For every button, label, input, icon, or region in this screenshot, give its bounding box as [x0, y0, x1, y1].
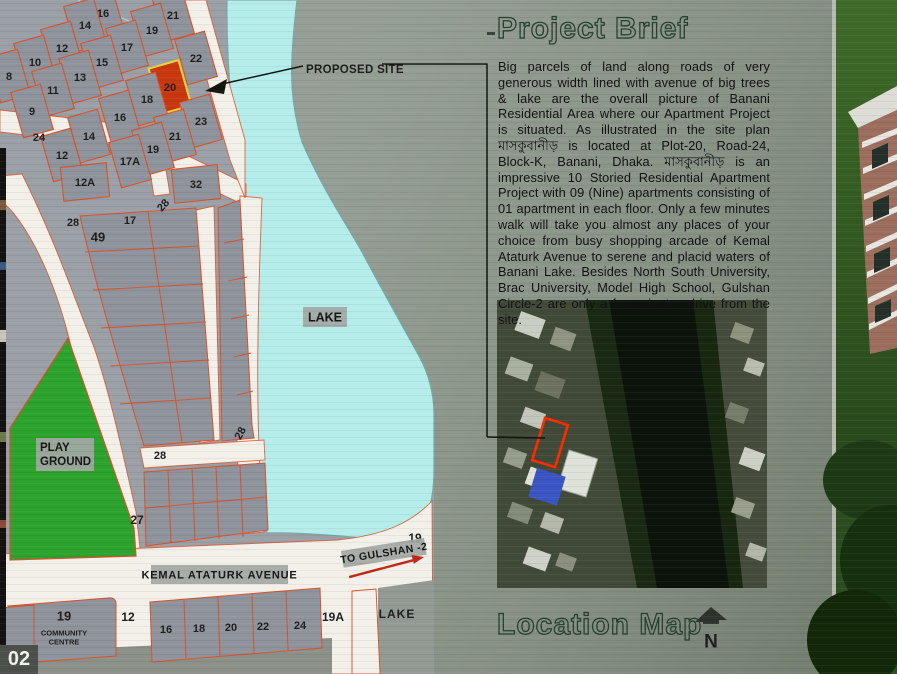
map-label: PROPOSED SITE	[306, 64, 404, 76]
building-photo-strip	[807, 0, 897, 674]
plot-number: 21	[167, 10, 179, 22]
title-dash	[487, 32, 495, 35]
map-label: 22	[257, 621, 269, 633]
plot-number: 23	[195, 116, 207, 128]
map-label: 24	[33, 132, 46, 144]
plot-number: 19	[147, 144, 159, 156]
page-number-badge: 02	[0, 645, 38, 674]
map-label: 27	[130, 513, 144, 527]
plot-number: 17	[121, 42, 133, 54]
project-brief-body: Big parcels of land along roads of very …	[498, 59, 770, 328]
map-chip-label: LAKE	[308, 310, 342, 324]
plot-number: 12A	[75, 177, 95, 189]
map-label: N	[704, 632, 718, 653]
project-brief-title: Project Brief	[497, 12, 688, 46]
plot-number: 16	[114, 112, 126, 124]
map-chip-label: KEMAL ATATURK AVENUE	[142, 569, 298, 581]
map-label: 18	[193, 623, 205, 635]
map-label: 19A	[322, 610, 344, 624]
plot-number: 20	[164, 82, 176, 94]
map-label: 16	[160, 624, 172, 636]
map-label: COMMUNITY	[41, 629, 87, 638]
map-chip-label: PLAY	[40, 442, 70, 454]
map-label: LAKE	[379, 607, 416, 621]
plot-number: 10	[29, 57, 41, 69]
plot-number: 22	[190, 53, 202, 65]
map-label: 24	[294, 620, 307, 632]
plot-number: 21	[169, 131, 181, 143]
left-film-strip	[0, 148, 6, 648]
map-label: 12	[121, 610, 135, 624]
location-map-title: Location Map	[497, 608, 702, 642]
map-chip: LAKE	[303, 307, 347, 327]
lake-south-area	[378, 580, 434, 674]
aerial-photo	[497, 300, 767, 588]
map-label: 19	[57, 609, 71, 624]
road-19a	[352, 589, 380, 674]
plot-number: 19	[146, 25, 158, 37]
plot-number: 15	[96, 57, 108, 69]
map-chip: KEMAL ATATURK AVENUE	[142, 565, 298, 584]
plot-number: 11	[47, 85, 59, 97]
plot-number: 8	[6, 71, 12, 83]
map-chip-label: GROUND	[40, 456, 91, 468]
plot-number: 32	[190, 179, 202, 191]
plot-number: 14	[83, 131, 96, 143]
plot-number: 13	[74, 72, 86, 84]
plot-number: 12	[56, 150, 68, 162]
plot-number: 18	[141, 94, 153, 106]
map-label: CENTRE	[49, 638, 80, 647]
plot-number: 9	[29, 106, 35, 118]
map-label: 28	[154, 450, 166, 462]
plot-number: 17A	[120, 156, 140, 168]
map-label: 49	[91, 230, 105, 245]
leader-to-marker	[487, 437, 545, 438]
map-label: 20	[225, 622, 237, 634]
map-label: 17	[124, 215, 136, 227]
map-label: 28	[67, 217, 79, 229]
plot-number: 12	[56, 43, 68, 55]
map-chip: PLAYGROUND	[36, 438, 94, 471]
plot-number: 14	[79, 20, 92, 32]
